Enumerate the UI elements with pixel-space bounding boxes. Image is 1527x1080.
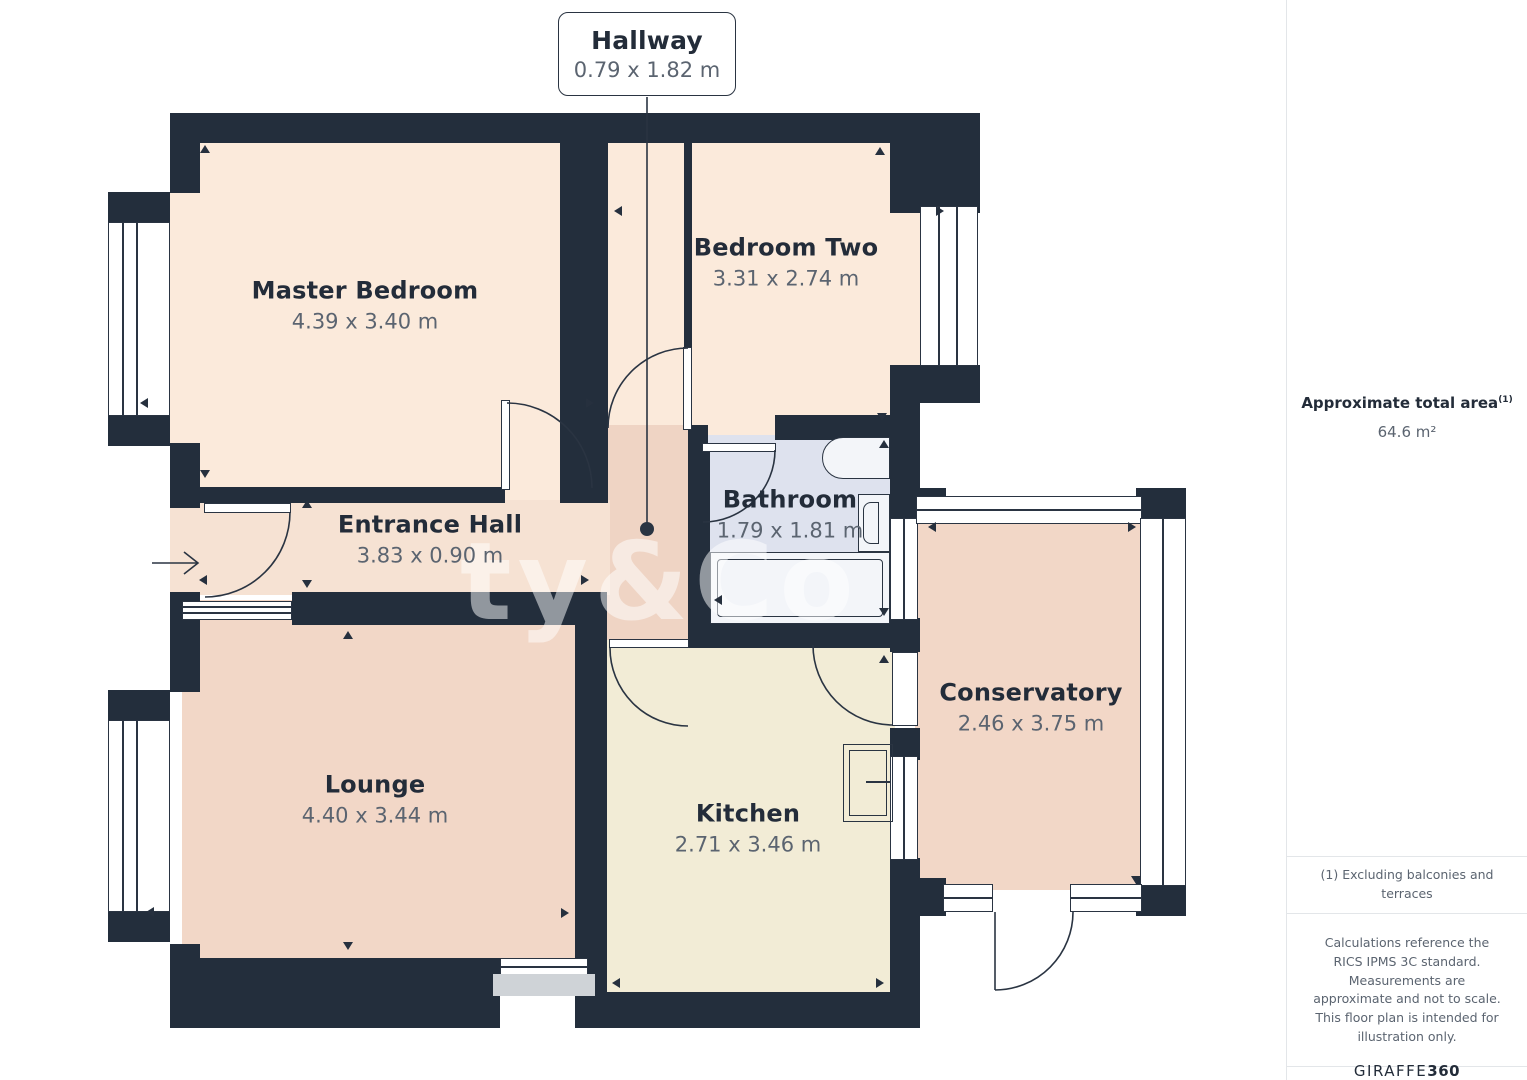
total-area-block: Approximate total area(1) 64.6 m² [1287, 394, 1527, 441]
disclaimer-text: Calculations reference the RICS IPMS 3C … [1313, 935, 1501, 1044]
measure-arrow [586, 398, 594, 408]
room-name: Kitchen [675, 800, 821, 828]
footnote-box: (1) Excluding balconies and terraces [1287, 856, 1527, 914]
measure-arrow [877, 413, 887, 421]
info-sidebar: Approximate total area(1) 64.6 m² (1) Ex… [1286, 0, 1527, 1080]
room-dims: 4.39 x 3.40 m [252, 310, 479, 334]
door-arc [995, 912, 1073, 990]
measure-arrow [140, 398, 148, 408]
measure-arrow [581, 575, 589, 585]
room-name: Lounge [302, 771, 448, 799]
room-label-entrance-hall: Entrance Hall 3.83 x 0.90 m [338, 511, 522, 568]
measure-arrow [146, 907, 154, 917]
total-area-superscript: (1) [1498, 395, 1513, 405]
room-label-kitchen: Kitchen 2.71 x 3.46 m [675, 800, 821, 857]
disclaimer-box: Calculations reference the RICS IPMS 3C … [1287, 914, 1527, 1067]
measure-arrow [302, 500, 312, 508]
giraffe360-logo: GIRAFFE360 [1313, 1060, 1501, 1080]
measure-arrow [561, 908, 569, 918]
measure-arrow [614, 206, 622, 216]
door-arc [205, 512, 290, 597]
room-label-bedroom-two: Bedroom Two 3.31 x 2.74 m [694, 234, 879, 291]
measure-arrow [302, 580, 312, 588]
measure-arrow [343, 942, 353, 950]
measure-arrow [200, 470, 210, 478]
room-label-master-bedroom: Master Bedroom 4.39 x 3.40 m [252, 277, 479, 334]
room-label-bathroom: Bathroom 1.79 x 1.81 m [717, 486, 863, 543]
measure-arrow [879, 440, 889, 448]
door-arcs [152, 97, 1073, 990]
room-dims: 4.40 x 3.44 m [302, 804, 448, 828]
callout-room-dims: 0.79 x 1.82 m [574, 58, 720, 82]
door-arc [813, 645, 893, 725]
door-arc [507, 403, 592, 488]
entry-arrow-icon [152, 552, 198, 574]
measure-arrows [140, 145, 1141, 988]
footnote-text: (1) Excluding balconies and terraces [1301, 866, 1513, 904]
callout-room-name: Hallway [591, 26, 703, 55]
room-dims: 2.71 x 3.46 m [675, 833, 821, 857]
brand-bold: 360 [1427, 1062, 1460, 1080]
floor-plan-page: ty&Co [0, 0, 1527, 1080]
room-dims: 3.31 x 2.74 m [694, 267, 879, 291]
room-name: Bedroom Two [694, 234, 879, 262]
measure-arrow [879, 608, 889, 616]
room-dims: 1.79 x 1.81 m [717, 519, 863, 543]
total-area-label: Approximate total area(1) [1287, 394, 1527, 412]
measure-arrow [1128, 522, 1136, 532]
measure-arrow [714, 595, 722, 605]
room-name: Master Bedroom [252, 277, 479, 305]
measure-arrow [928, 522, 936, 532]
measure-arrow [612, 978, 620, 988]
room-dims: 2.46 x 3.75 m [939, 712, 1122, 736]
door-arc [608, 348, 688, 428]
measure-arrow [1131, 876, 1141, 884]
room-dims: 3.83 x 0.90 m [338, 544, 522, 568]
total-area-value: 64.6 m² [1287, 423, 1527, 441]
room-label-conservatory: Conservatory 2.46 x 3.75 m [939, 679, 1122, 736]
door-arc [610, 648, 688, 726]
measure-arrow [875, 147, 885, 155]
measure-arrow [199, 575, 207, 585]
measure-arrow [936, 206, 944, 216]
measure-arrow [343, 631, 353, 639]
brand-regular: GIRAFFE [1354, 1062, 1427, 1080]
room-name: Bathroom [717, 486, 863, 514]
callout-leader-dot [640, 522, 654, 536]
room-label-lounge: Lounge 4.40 x 3.44 m [302, 771, 448, 828]
total-area-label-text: Approximate total area [1301, 394, 1498, 412]
measure-arrow [879, 655, 889, 663]
measure-arrow [200, 145, 210, 153]
measure-arrow [876, 978, 884, 988]
room-name: Entrance Hall [338, 511, 522, 539]
room-name: Conservatory [939, 679, 1122, 707]
hallway-callout: Hallway 0.79 x 1.82 m [558, 12, 736, 96]
